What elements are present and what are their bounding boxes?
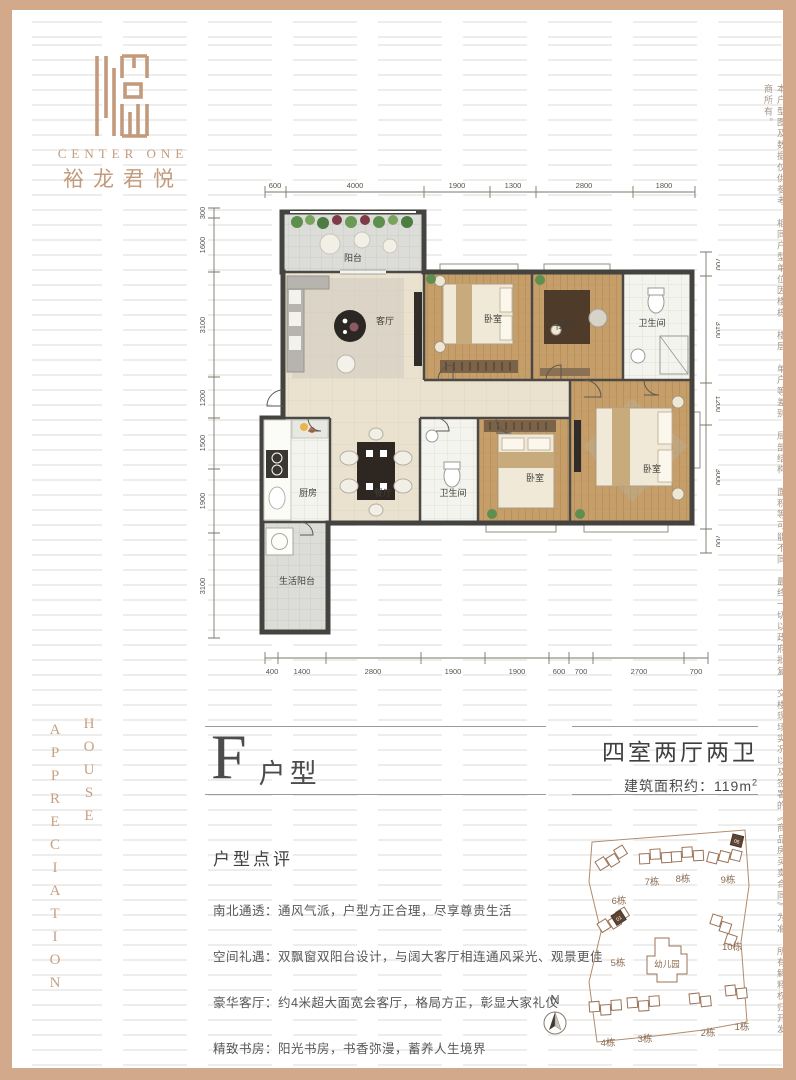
svg-text:2700: 2700 <box>631 667 648 676</box>
svg-text:2800: 2800 <box>576 181 593 190</box>
label-building-3: 3栋 <box>638 1033 653 1045</box>
brand-seal-icon <box>93 52 151 140</box>
review-item: 精致书房：阳光书房，书香弥漫，蓄养人生境界 <box>213 1038 543 1057</box>
rule-left-bottom <box>205 794 546 795</box>
svg-text:2800: 2800 <box>365 667 382 676</box>
review-list: 南北通透：通风气派，户型方正合理，尽享尊贵生活 空间礼遇：双飘窗双阳台设计，与阔… <box>213 900 543 1080</box>
svg-text:1800: 1800 <box>656 181 673 190</box>
building-8 <box>671 846 704 862</box>
svg-text:300: 300 <box>200 207 207 220</box>
unit-info: 四室两厅两卫 建筑面积约：119m2 <box>568 733 758 796</box>
label-building-5: 5栋 <box>611 957 626 969</box>
label-building-9: 9栋 <box>721 874 736 886</box>
svg-text:1900: 1900 <box>445 667 462 676</box>
building-7 <box>639 848 672 864</box>
svg-text:1400: 1400 <box>294 667 311 676</box>
unit-title: F 户型 <box>211 728 321 791</box>
frame-left <box>0 0 12 1080</box>
svg-text:600: 600 <box>269 181 282 190</box>
svg-text:1200: 1200 <box>200 390 207 407</box>
label-building-1: 1栋 <box>735 1021 750 1033</box>
label-study: 书房 <box>553 320 571 331</box>
north-compass-icon: N <box>544 992 566 1034</box>
label-building-7: 7栋 <box>645 876 660 888</box>
label-living: 客厅 <box>376 315 394 326</box>
rule-left-top <box>205 726 546 727</box>
unit-rooms-desc: 四室两厅两卫 <box>568 733 758 767</box>
label-bedroom3: 卧室 <box>643 463 661 474</box>
brand-name-en: CENTER ONE <box>50 146 196 162</box>
svg-text:N: N <box>550 992 559 1007</box>
frame-bottom <box>0 1068 796 1080</box>
side-text-appreciation: APPRECIATION <box>46 722 63 998</box>
label-bath2: 卫生间 <box>439 487 466 498</box>
siteplan-map: 05 01 6栋 7栋 8栋 9栋 5栋 10栋 4栋 3栋 2栋 1栋 幼儿园… <box>535 822 770 1057</box>
svg-text:3100: 3100 <box>714 322 720 339</box>
label-bedroom2: 卧室 <box>526 472 544 483</box>
review-item: 空间礼遇：双飘窗双阳台设计，与阔大客厅相连通风采光、观景更佳 <box>213 946 543 965</box>
frame-right <box>783 0 796 1080</box>
brand-name-cn: 裕龙君悦 <box>50 163 196 193</box>
review-item: 豪华客厅：约4米超大面宽会客厅，格局方正，彰显大家礼仪 <box>213 992 543 1011</box>
label-building-8: 8栋 <box>676 873 691 885</box>
label-dining: 餐厅 <box>374 487 392 498</box>
label-utility-balcony: 生活阳台 <box>279 575 315 586</box>
review-title: 户型点评 <box>213 845 293 870</box>
svg-text:3100: 3100 <box>200 578 207 595</box>
building-9 <box>707 844 742 869</box>
svg-text:600: 600 <box>553 667 566 676</box>
label-kitchen: 厨房 <box>299 487 317 498</box>
label-building-6: 6栋 <box>612 895 627 907</box>
svg-text:700: 700 <box>714 535 720 548</box>
building-4 <box>589 1000 622 1016</box>
label-building-10: 10栋 <box>722 941 743 953</box>
label-building-2: 2栋 <box>701 1027 716 1039</box>
svg-text:700: 700 <box>575 667 588 676</box>
unit-type-label: 户型 <box>259 752 321 791</box>
building-2 <box>689 992 711 1008</box>
label-building-4: 4栋 <box>601 1037 616 1049</box>
svg-text:1600: 1600 <box>200 237 207 254</box>
svg-text:400: 400 <box>266 667 279 676</box>
unit-area: 建筑面积约：119m2 <box>568 776 758 796</box>
review-item: 南北通透：通风气派，户型方正合理，尽享尊贵生活 <box>213 900 543 919</box>
rule-right-top <box>572 726 758 727</box>
svg-text:1900: 1900 <box>200 493 207 510</box>
side-text-house: HOUSE <box>80 716 97 831</box>
building-3 <box>627 996 660 1012</box>
svg-text:1900: 1900 <box>509 667 526 676</box>
unit-letter: F <box>211 728 247 786</box>
highlighted-unit-9: 05 <box>730 834 743 847</box>
label-balcony: 阳台 <box>344 252 362 263</box>
svg-text:1500: 1500 <box>200 435 207 452</box>
floorplan-drawing: 阳台 客厅 卧室 书房 卫生间 厨房 餐厅 卫生间 卧室 卧室 生活阳台 600… <box>200 180 720 700</box>
label-bedroom1: 卧室 <box>484 313 502 324</box>
svg-text:3000: 3000 <box>714 469 720 486</box>
label-kindergarten: 幼儿园 <box>654 959 680 969</box>
svg-text:1900: 1900 <box>449 181 466 190</box>
svg-text:1300: 1300 <box>505 181 522 190</box>
label-bath1: 卫生间 <box>638 317 665 328</box>
building-6 <box>595 845 629 873</box>
svg-text:3100: 3100 <box>200 317 207 334</box>
svg-text:700: 700 <box>714 258 720 271</box>
living-room-furniture <box>287 276 422 378</box>
brochure-page: CENTER ONE 裕龙君悦 <box>0 0 796 1080</box>
frame-top <box>0 0 796 10</box>
svg-text:4000: 4000 <box>347 181 364 190</box>
svg-text:700: 700 <box>690 667 703 676</box>
utility-balcony-furniture <box>266 528 293 555</box>
svg-text:1200: 1200 <box>714 396 720 413</box>
